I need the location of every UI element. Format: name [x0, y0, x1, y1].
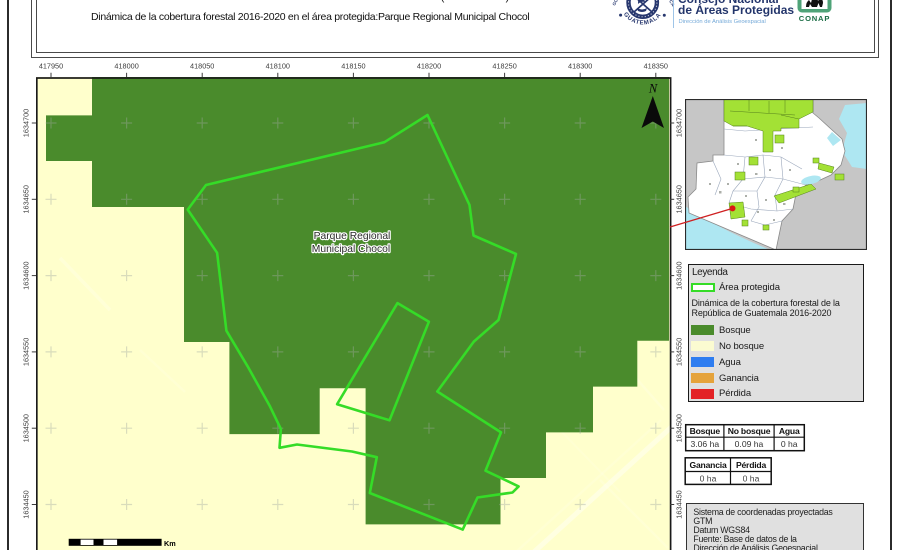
svg-text:Bosque: Bosque	[690, 426, 721, 436]
svg-text:418200: 418200	[417, 61, 441, 70]
svg-text:1634600: 1634600	[22, 261, 31, 289]
svg-text:418250: 418250	[492, 61, 516, 70]
svg-text:1634650: 1634650	[675, 185, 684, 213]
svg-text:Agua: Agua	[779, 426, 800, 436]
svg-text:418350: 418350	[644, 61, 668, 70]
svg-text:417950: 417950	[39, 61, 63, 70]
svg-text:No bosque: No bosque	[728, 426, 771, 436]
svg-text:418100: 418100	[266, 61, 290, 70]
svg-text:0 ha: 0 ha	[781, 439, 798, 449]
svg-text:418050: 418050	[190, 61, 214, 70]
svg-text:Ganancia: Ganancia	[689, 460, 727, 470]
svg-text:0.09 ha: 0.09 ha	[735, 439, 764, 449]
svg-text:1634700: 1634700	[675, 109, 684, 137]
svg-text:418000: 418000	[114, 61, 138, 70]
svg-text:3.06 ha: 3.06 ha	[690, 439, 719, 449]
svg-text:1634600: 1634600	[675, 261, 684, 289]
svg-text:1634550: 1634550	[675, 338, 684, 366]
svg-text:1634500: 1634500	[22, 414, 31, 442]
svg-text:1634700: 1634700	[22, 109, 31, 137]
svg-text:0 ha: 0 ha	[700, 474, 717, 484]
svg-text:1634500: 1634500	[675, 414, 684, 442]
svg-text:1634650: 1634650	[22, 185, 31, 213]
svg-text:418150: 418150	[341, 61, 365, 70]
svg-text:418300: 418300	[568, 61, 592, 70]
svg-text:1634450: 1634450	[675, 490, 684, 518]
svg-text:1634450: 1634450	[22, 490, 31, 518]
svg-text:Pérdida: Pérdida	[736, 460, 767, 470]
svg-text:0 ha: 0 ha	[743, 474, 760, 484]
svg-text:1634550: 1634550	[22, 338, 31, 366]
